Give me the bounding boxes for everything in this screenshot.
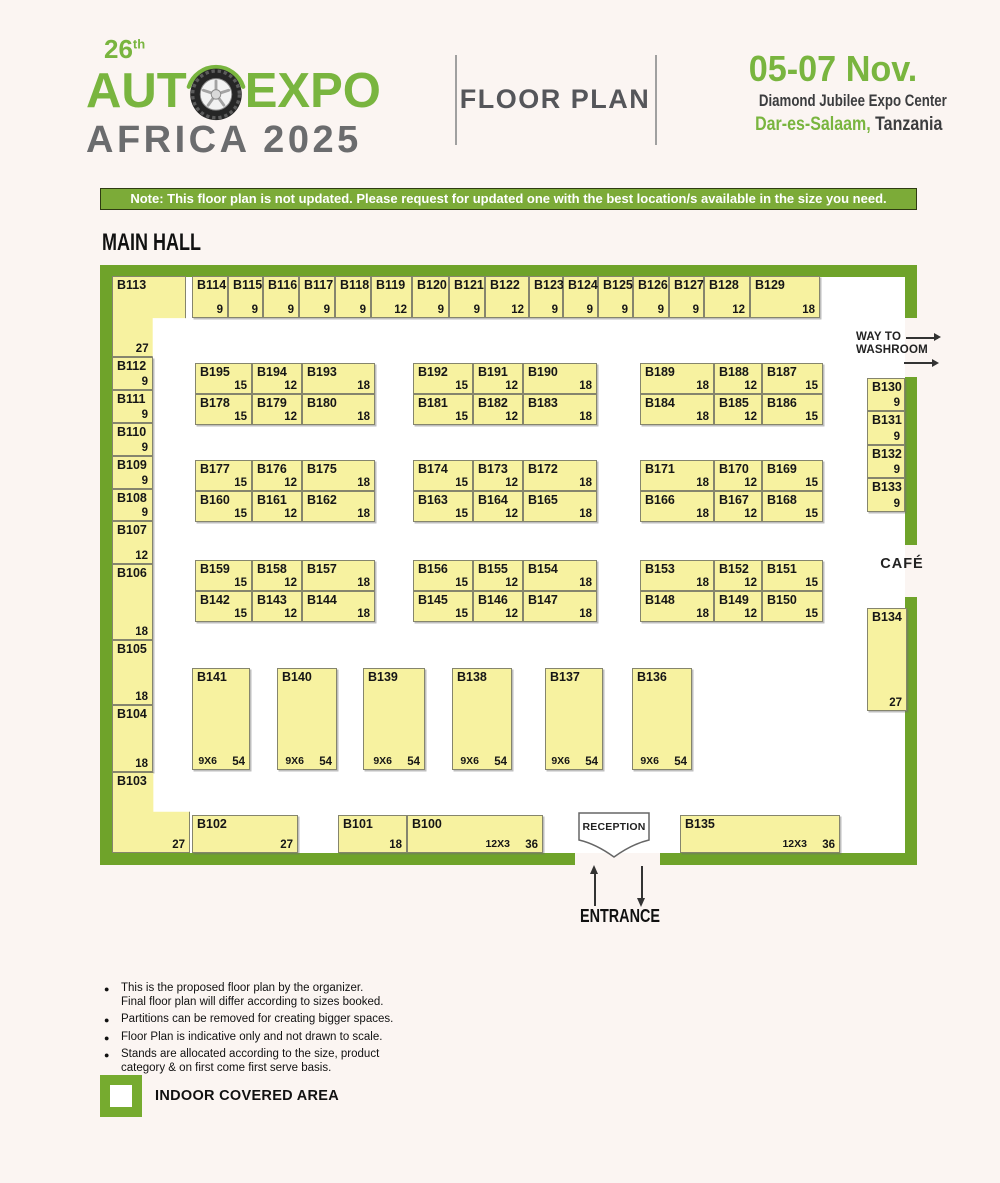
booth-B138: B1389X654 [452, 668, 512, 770]
booth-B148: B14818 [640, 591, 714, 622]
wall-bottom-left [100, 853, 575, 865]
booth-B137: B1379X654 [545, 668, 603, 770]
wall-right-upper [905, 377, 917, 545]
tire-icon [185, 61, 247, 123]
booth-B178: B17815 [195, 394, 252, 425]
booth-B192: B19215 [413, 363, 473, 394]
booth-B173: B17312 [473, 460, 523, 491]
booth-B160: B16015 [195, 491, 252, 522]
booth-B127: B1279 [669, 276, 704, 318]
booth-B156: B15615 [413, 560, 473, 591]
booth-B183: B18318 [523, 394, 597, 425]
booth-B171: B17118 [640, 460, 714, 491]
booth-B174: B17415 [413, 460, 473, 491]
booth-B145: B14515 [413, 591, 473, 622]
booth-B164: B16412 [473, 491, 523, 522]
booth-B151: B15115 [762, 560, 823, 591]
way-to-label: WAY TO [856, 331, 901, 344]
booth-B155: B15512 [473, 560, 523, 591]
event-country: Tanzania [875, 113, 942, 135]
booth-B159: B15915 [195, 560, 252, 591]
event-city: Dar-es-Salaam, [755, 113, 871, 135]
indoor-area-swatch-icon [100, 1075, 142, 1117]
booth-B114: B1149 [192, 276, 228, 318]
booth-B187: B18715 [762, 363, 823, 394]
entrance-label: ENTRANCE [572, 906, 668, 927]
booth-B104: B10418 [112, 705, 153, 772]
booth-B106: B10618 [112, 564, 153, 640]
booth-B154: B15418 [523, 560, 597, 591]
booth-B130: B1309 [867, 378, 905, 411]
booth-B161: B16112 [252, 491, 302, 522]
booth-B169: B16915 [762, 460, 823, 491]
booth-B168: B16815 [762, 491, 823, 522]
booth-B163: B16315 [413, 491, 473, 522]
booth-B131: B1319 [867, 411, 905, 445]
page-title: FLOOR PLAN [455, 84, 655, 115]
booth-B190: B19018 [523, 363, 597, 394]
booth-B109: B1099 [112, 456, 153, 489]
booth-B182: B18212 [473, 394, 523, 425]
booth-B144: B14418 [302, 591, 375, 622]
booth-B123: B1239 [529, 276, 563, 318]
booth-B157: B15718 [302, 560, 375, 591]
wall-left [100, 265, 112, 865]
booth-B112: B1129 [112, 357, 153, 390]
booth-B177: B17715 [195, 460, 252, 491]
booth-B158: B15812 [252, 560, 302, 591]
booth-B118: B1189 [335, 276, 371, 318]
washroom-arrow-icon [904, 362, 936, 364]
footer-note: This is the proposed floor plan by the o… [104, 982, 444, 1009]
booth-B188: B18812 [714, 363, 762, 394]
booth-B122: B12212 [485, 276, 529, 318]
booth-B142: B14215 [195, 591, 252, 622]
event-info: 05-07 Nov. Diamond Jubilee Expo Center D… [738, 50, 928, 136]
booth-B125: B1259 [598, 276, 633, 318]
booth-B110: B1109 [112, 423, 153, 456]
event-dates: 05-07 Nov. [743, 50, 924, 88]
entrance-out-arrow-icon [641, 866, 643, 902]
legend: INDOOR COVERED AREA [100, 1075, 339, 1117]
booth-B149: B14912 [714, 591, 762, 622]
booth-B128: B12812 [704, 276, 750, 318]
booth-B100: B10012X336 [407, 815, 543, 853]
booth-B117: B1179 [299, 276, 335, 318]
booth-B166: B16618 [640, 491, 714, 522]
booth-B141: B1419X654 [192, 668, 250, 770]
booth-B102: B10227 [192, 815, 298, 853]
footer-note: Stands are allocated according to the si… [104, 1048, 444, 1075]
booth-B185: B18512 [714, 394, 762, 425]
booth-B124: B1249 [563, 276, 598, 318]
reception-booth: RECEPTION [578, 812, 650, 859]
logo-word-aut: AUT [86, 67, 187, 116]
cafe-label: CAFÉ [866, 556, 938, 572]
booth-B126: B1269 [633, 276, 669, 318]
booth-B184: B18418 [640, 394, 714, 425]
booth-B136: B1369X654 [632, 668, 692, 770]
header-divider-right [655, 55, 657, 145]
booth-B172: B17218 [523, 460, 597, 491]
footer-note: Partitions can be removed for creating b… [104, 1013, 444, 1027]
booth-B194: B19412 [252, 363, 302, 394]
booth-B170: B17012 [714, 460, 762, 491]
reception-banner-shape [578, 812, 650, 859]
logo-subline: AFRICA 2025 [86, 121, 381, 159]
booth-B111: B1119 [112, 390, 153, 423]
booth-B195: B19515 [195, 363, 252, 394]
wall-corner-top-right [905, 265, 917, 318]
expo-logo: 26th AUT EXPO AFRICA 2025 [86, 36, 381, 159]
booth-B150: B15015 [762, 591, 823, 622]
booth-B120: B1209 [412, 276, 449, 318]
booth-B119: B11912 [371, 276, 412, 318]
booth-B139: B1399X654 [363, 668, 425, 770]
booth-B147: B14718 [523, 591, 597, 622]
logo-word-expo: EXPO [245, 67, 381, 116]
legend-label: INDOOR COVERED AREA [155, 1088, 339, 1104]
booth-B176: B17612 [252, 460, 302, 491]
washroom-arrow-icon [906, 337, 938, 339]
booth-B153: B15318 [640, 560, 714, 591]
booth-B162: B16218 [302, 491, 375, 522]
booth-B108: B1089 [112, 489, 153, 521]
booth-B115: B1159 [228, 276, 263, 318]
logo-wordmark: AUT EXPO [86, 60, 381, 122]
wall-bottom-right [660, 853, 917, 865]
washroom-sign: WAY TO WASHROOM [856, 331, 942, 364]
booth-B132: B1329 [867, 445, 905, 478]
booth-B101: B10118 [338, 815, 407, 853]
reception-label: RECEPTION [578, 821, 650, 833]
booth-B140: B1409X654 [277, 668, 337, 770]
booth-B165: B16518 [523, 491, 597, 522]
footer-notes: This is the proposed floor plan by the o… [104, 982, 444, 1079]
event-location: Dar-es-Salaam, Tanzania [755, 113, 911, 136]
booth-B121: B1219 [449, 276, 485, 318]
footer-note: Floor Plan is indicative only and not dr… [104, 1031, 444, 1045]
booth-B129: B12918 [750, 276, 820, 318]
booth-B193: B19318 [302, 363, 375, 394]
edition-label: 26th [104, 36, 381, 62]
booth-B116: B1169 [263, 276, 299, 318]
floor-plan-page: 26th AUT EXPO AFRICA 2025 FLOOR PL [0, 0, 1000, 1183]
booth-B143: B14312 [252, 591, 302, 622]
note-banner: Note: This floor plan is not updated. Pl… [100, 188, 917, 210]
booth-B186: B18615 [762, 394, 823, 425]
booth-B152: B15212 [714, 560, 762, 591]
event-venue: Diamond Jubilee Expo Center [759, 91, 907, 111]
booth-B133: B1339 [867, 478, 905, 512]
booth-B105: B10518 [112, 640, 153, 705]
booth-B107: B10712 [112, 521, 153, 564]
booth-B180: B18018 [302, 394, 375, 425]
booth-B181: B18115 [413, 394, 473, 425]
booth-B134: B13427 [867, 608, 907, 711]
booth-B189: B18918 [640, 363, 714, 394]
booth-B135: B13512X336 [680, 815, 840, 853]
hall-title: MAIN HALL [102, 229, 201, 257]
booth-B191: B19112 [473, 363, 523, 394]
booth-B146: B14612 [473, 591, 523, 622]
washroom-label: WASHROOM [856, 344, 942, 357]
booth-B167: B16712 [714, 491, 762, 522]
booth-B179: B17912 [252, 394, 302, 425]
entrance-in-arrow-icon [594, 870, 596, 906]
booth-B175: B17518 [302, 460, 375, 491]
